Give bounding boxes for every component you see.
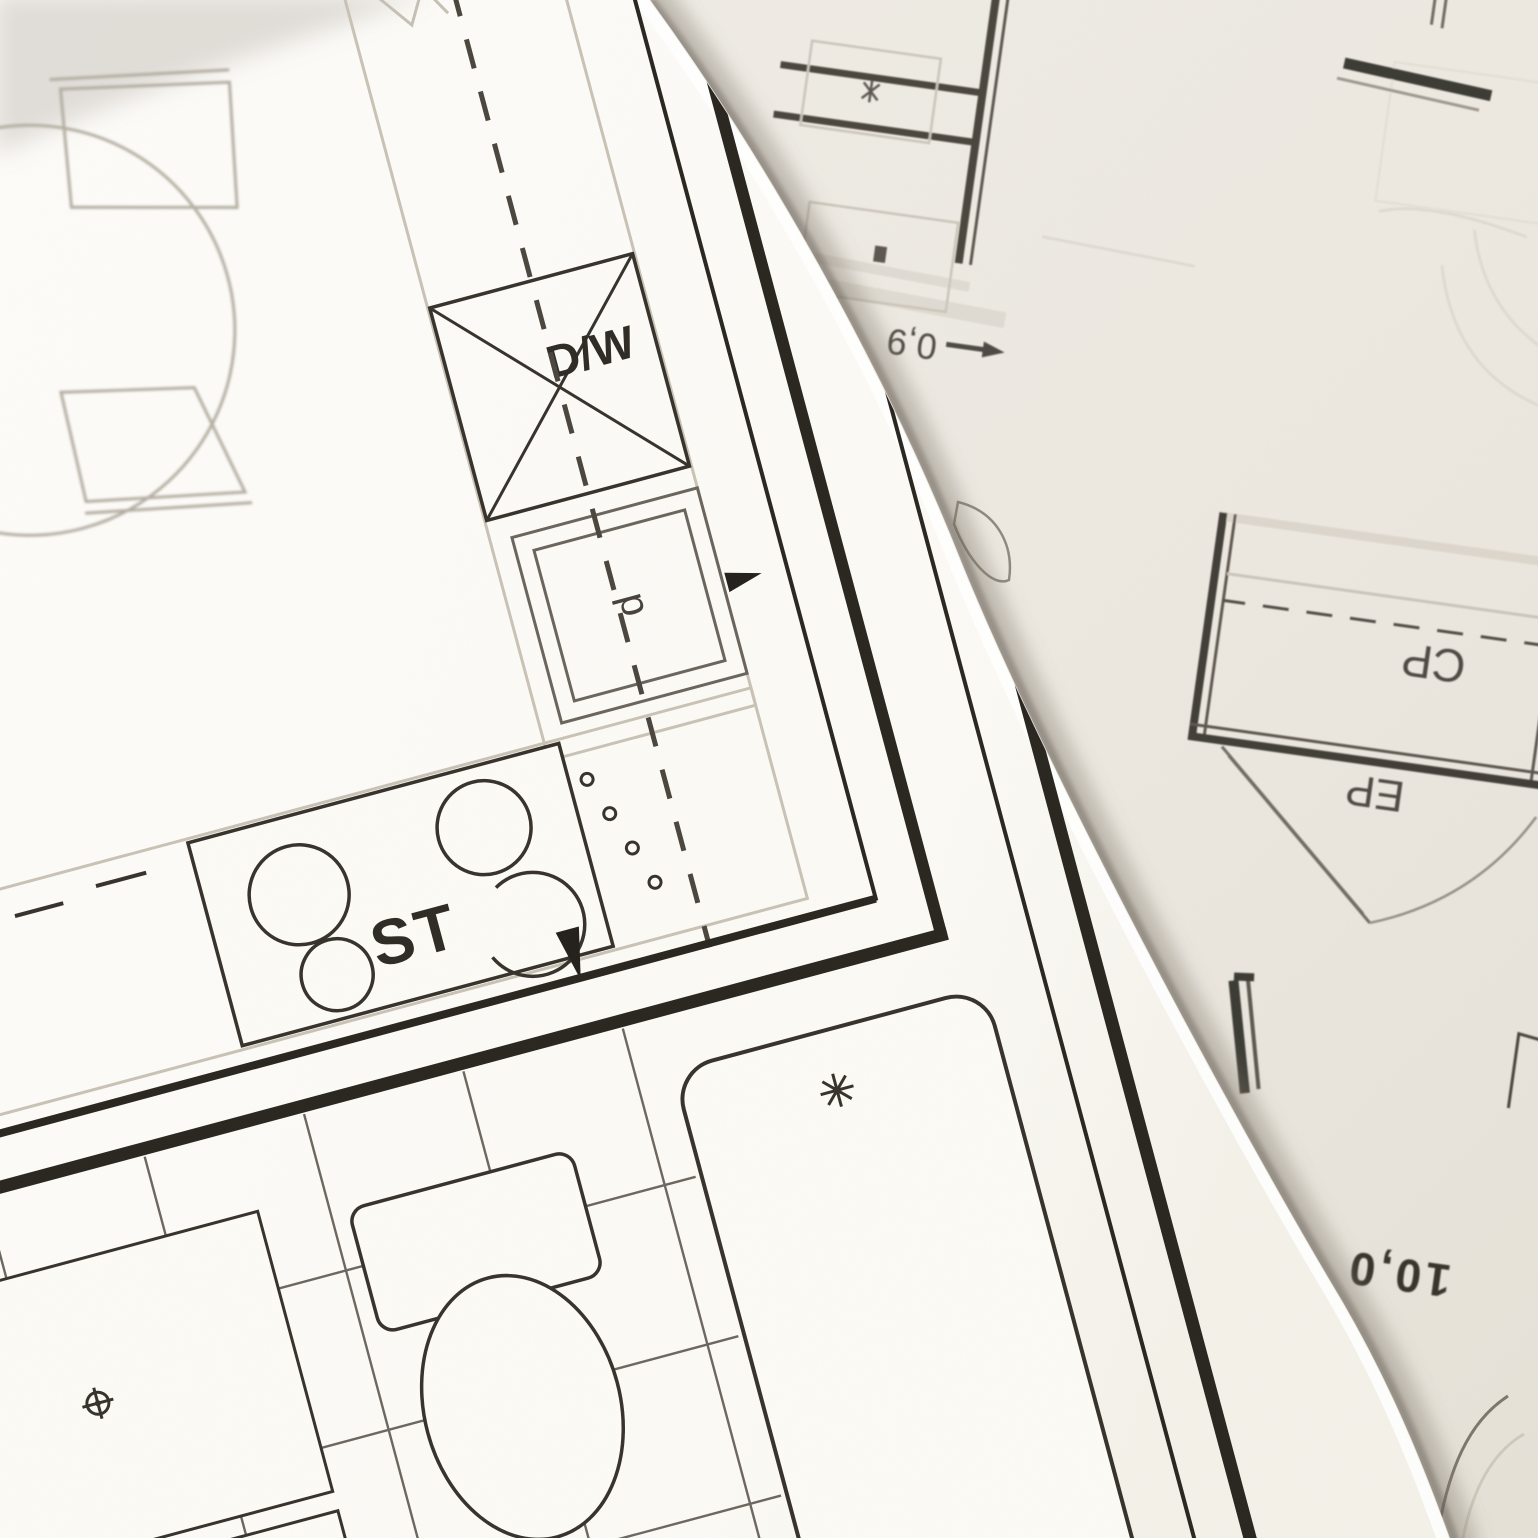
floorplan-scene: 0,9 CP EP — [0, 0, 1538, 1538]
photo-of-floorplans: 0,9 CP EP — [0, 0, 1538, 1538]
paper-grain — [0, 0, 1538, 1538]
